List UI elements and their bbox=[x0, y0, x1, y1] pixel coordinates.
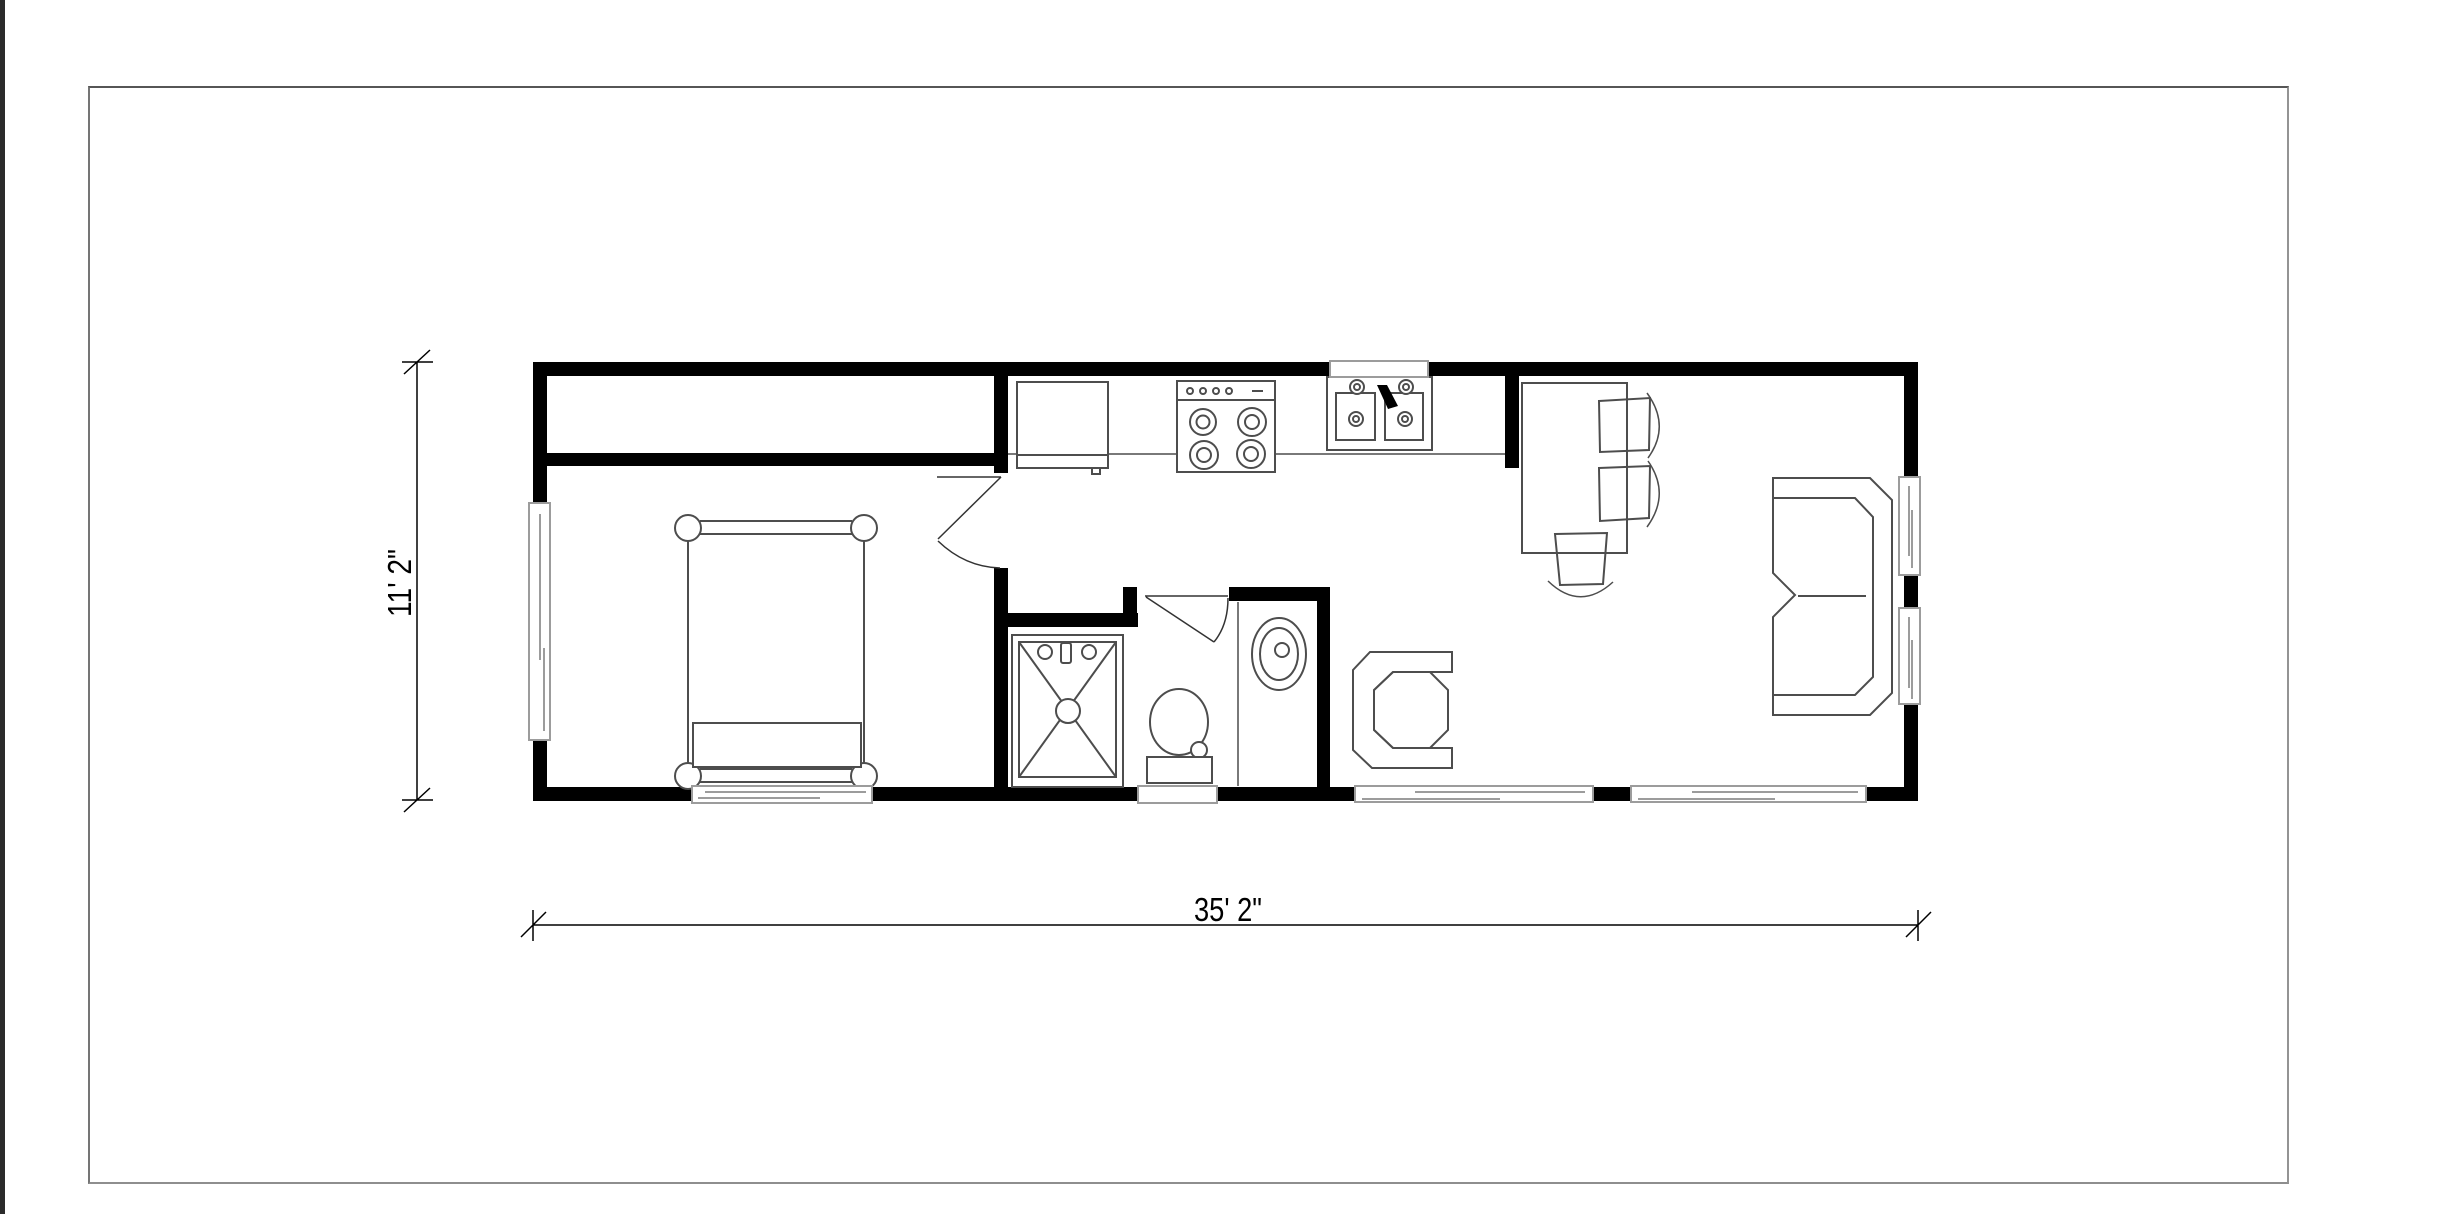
height-dimension: 11' 2" bbox=[381, 350, 433, 812]
sofa bbox=[1773, 478, 1892, 715]
window-bathroom-bottom bbox=[1138, 786, 1217, 803]
sink-fitting bbox=[1350, 380, 1364, 394]
dining-chair bbox=[1599, 466, 1650, 521]
bedroom-door bbox=[937, 477, 1001, 568]
wall-bedroom-divider bbox=[994, 362, 1008, 801]
wall-right bbox=[1904, 362, 1918, 801]
dimensions: 11' 2" 35' 2" bbox=[381, 350, 1931, 941]
toilet-tank bbox=[1147, 757, 1212, 783]
shower-control bbox=[1038, 645, 1052, 659]
bathroom-sink bbox=[1252, 618, 1306, 690]
door-openings bbox=[992, 473, 1229, 603]
wall-kitchen-stub bbox=[1505, 374, 1519, 468]
bed bbox=[675, 515, 877, 789]
toilet bbox=[1147, 689, 1212, 783]
height-dimension-label: 11' 2" bbox=[381, 549, 418, 617]
dining-chair bbox=[1599, 398, 1650, 452]
width-dimension-label: 35' 2" bbox=[1194, 891, 1262, 928]
dining-set bbox=[1522, 383, 1659, 597]
page: 11' 2" 35' 2" bbox=[0, 0, 2442, 1214]
bathroom-door-swing bbox=[1214, 598, 1228, 642]
window-kitchen-top bbox=[1330, 361, 1428, 377]
shower-handle bbox=[1061, 643, 1071, 663]
bed-post bbox=[851, 515, 877, 541]
floor-plan-svg: 11' 2" 35' 2" bbox=[0, 0, 2442, 1214]
window-bedroom-bottom bbox=[692, 786, 872, 803]
refrigerator-front bbox=[1017, 455, 1108, 468]
refrigerator-handle bbox=[1092, 468, 1100, 474]
kitchen-sink bbox=[1327, 377, 1432, 450]
toilet-flush bbox=[1191, 742, 1207, 758]
sink-drain bbox=[1349, 412, 1363, 426]
shower-drain bbox=[1056, 699, 1080, 723]
armchair-seat bbox=[1374, 672, 1448, 748]
bedroom-door-leaf bbox=[937, 477, 1001, 539]
bed-post bbox=[675, 515, 701, 541]
wall-bath-right bbox=[1317, 587, 1330, 801]
sink-fitting bbox=[1399, 380, 1413, 394]
shower-control bbox=[1082, 645, 1096, 659]
width-dimension: 35' 2" bbox=[521, 891, 1931, 941]
bedroom-door-swing bbox=[938, 541, 1000, 568]
bed-footboard bbox=[693, 723, 861, 767]
dining-chair bbox=[1555, 533, 1607, 585]
sink-drain bbox=[1398, 412, 1412, 426]
armchair bbox=[1353, 652, 1452, 768]
wall-top bbox=[533, 362, 1918, 376]
wall-bath-top-left bbox=[1008, 613, 1138, 627]
wall-closet-bottom bbox=[533, 453, 1008, 466]
refrigerator bbox=[1017, 382, 1108, 474]
stove bbox=[1177, 381, 1275, 472]
refrigerator-body bbox=[1017, 382, 1108, 455]
shower bbox=[1012, 635, 1123, 787]
bedroom-door-opening bbox=[992, 473, 1010, 568]
armchair-frame bbox=[1353, 652, 1452, 768]
